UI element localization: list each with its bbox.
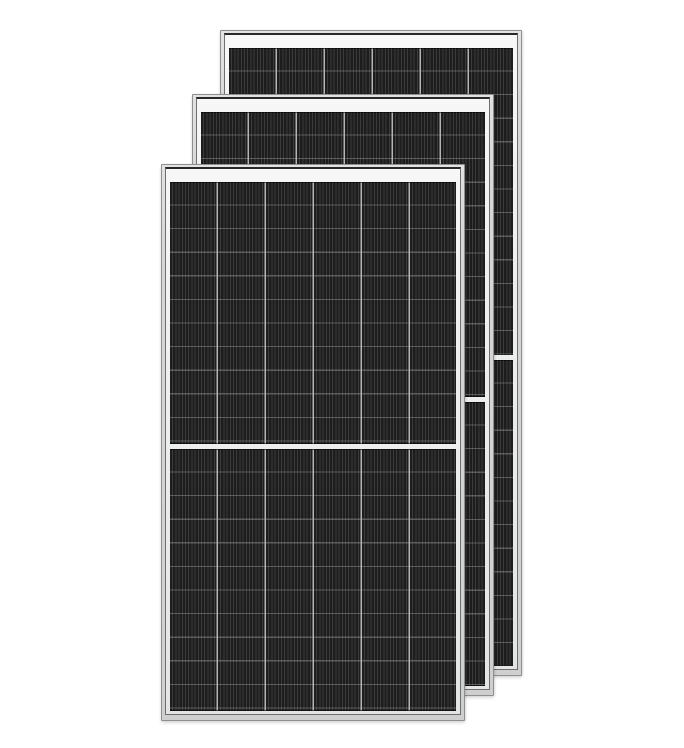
solar-panel-front <box>161 164 465 721</box>
cell-grid-upper-half <box>170 182 456 444</box>
product-image-canvas <box>0 0 684 748</box>
panel-frame-inner <box>165 167 461 715</box>
panel-laminate <box>166 169 460 714</box>
cell-grid-lower-half <box>170 449 456 711</box>
